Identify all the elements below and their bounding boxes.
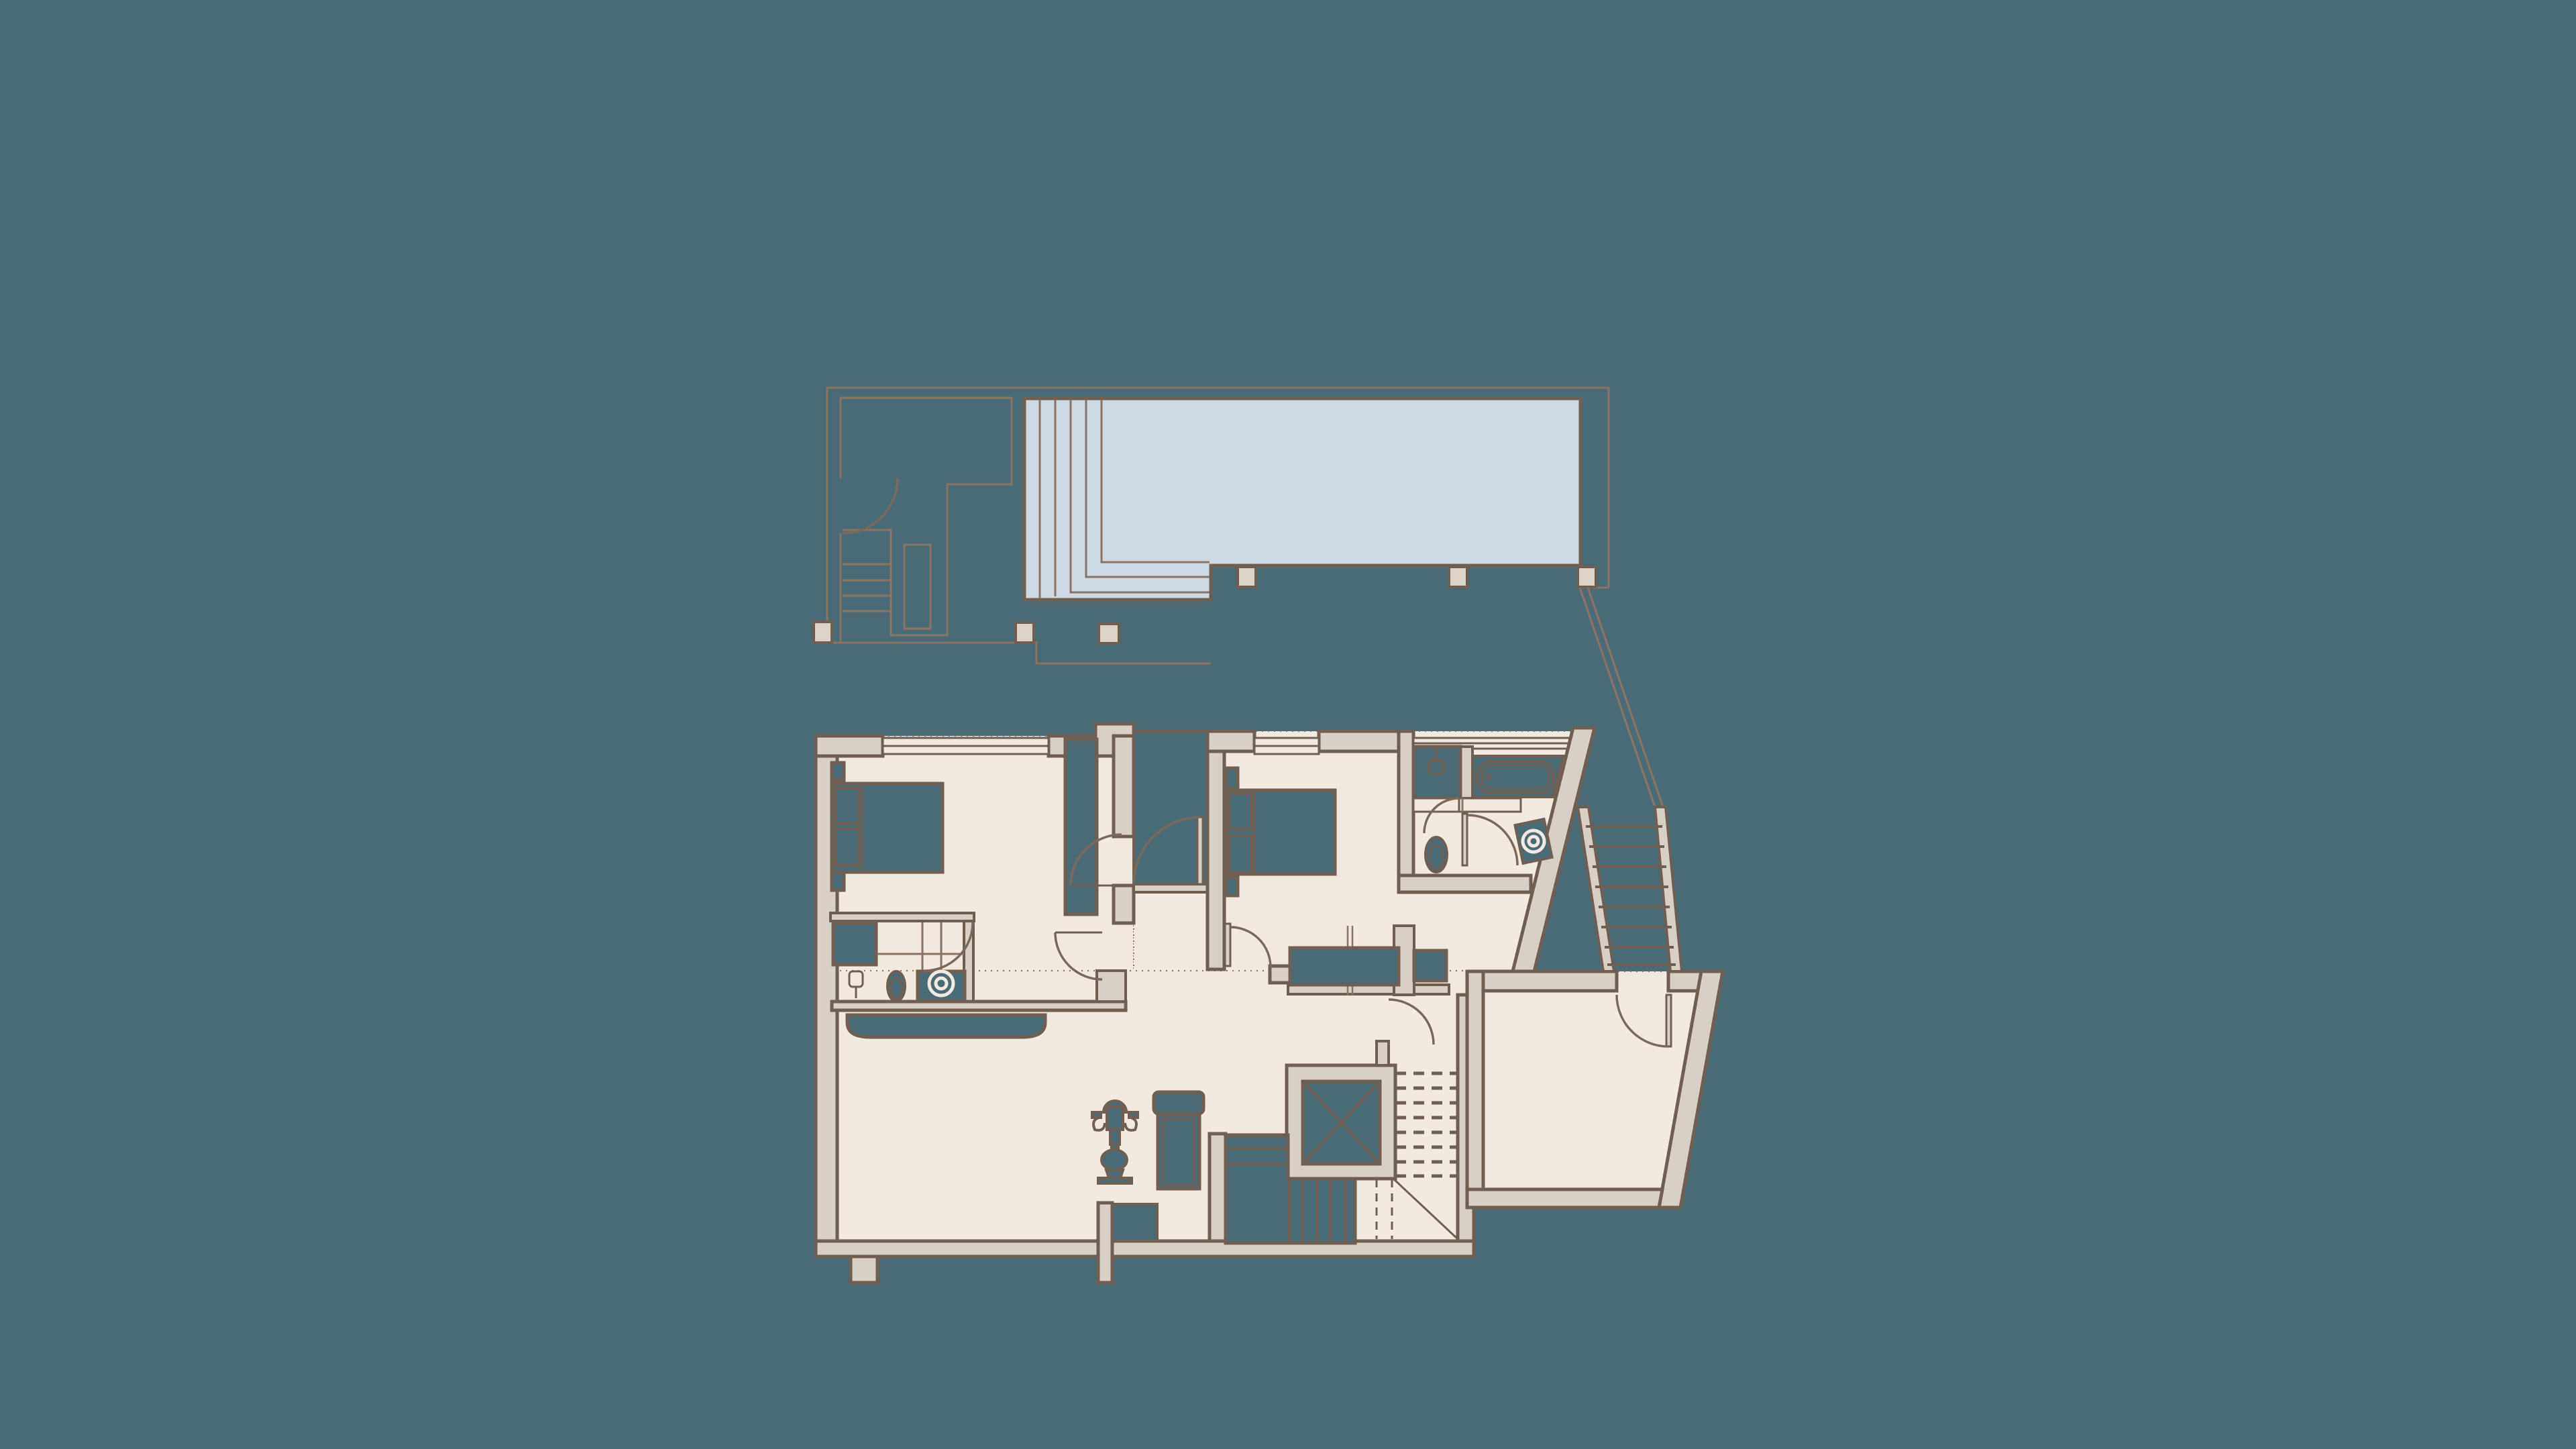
bedroom-2-door-leaf — [1225, 924, 1230, 966]
front-door-leaf — [1197, 817, 1203, 884]
pilaster — [1098, 1203, 1112, 1283]
pillow-icon — [835, 828, 859, 865]
floor-plan-canvas — [0, 0, 2576, 1449]
workout-bench-icon — [1154, 1092, 1203, 1189]
floor-plan-drawing — [0, 0, 2576, 1449]
wardrobe-icon — [1065, 739, 1097, 914]
pillow-icon — [1229, 836, 1252, 872]
wall — [1114, 736, 1134, 837]
wall — [1668, 971, 1701, 991]
pillow-icon — [1229, 794, 1252, 829]
wall — [1467, 1189, 1662, 1207]
tilted-washbasin-unit — [1515, 819, 1552, 863]
pilaster — [851, 1256, 877, 1283]
closet-icon — [1290, 948, 1399, 985]
wall — [1460, 747, 1472, 798]
shower-head-icon — [1429, 760, 1444, 773]
pedestal-fixture-icon — [849, 971, 863, 987]
closet-icon — [1414, 951, 1446, 981]
column — [1016, 623, 1034, 643]
shower-icon — [833, 923, 876, 965]
wall — [1399, 731, 1413, 892]
wall — [1097, 971, 1126, 1002]
bathroom-2-door-leaf — [1462, 814, 1467, 865]
entry-door-leaf — [1666, 995, 1671, 1046]
column — [1238, 567, 1256, 587]
pillow-icon — [835, 788, 859, 823]
lightwell-notch — [1112, 1204, 1157, 1241]
nightstand-icon — [832, 763, 844, 780]
nightstand-icon — [1226, 877, 1238, 896]
wall — [1114, 885, 1134, 923]
wall — [830, 913, 974, 921]
wall — [1134, 884, 1207, 892]
wall — [1467, 971, 1483, 1207]
wall — [816, 736, 883, 756]
column — [1449, 567, 1467, 587]
wall — [1399, 875, 1531, 892]
column — [1578, 567, 1596, 587]
vanity-counter — [1413, 798, 1521, 812]
column — [814, 622, 832, 643]
wall — [1207, 731, 1254, 751]
wall — [816, 1241, 1474, 1256]
washbasin-cabinet — [1515, 819, 1552, 863]
wall — [832, 1002, 1126, 1010]
wall — [1207, 731, 1224, 969]
column — [1099, 624, 1119, 643]
wall — [1319, 731, 1399, 751]
wall — [1210, 1134, 1226, 1243]
curved-bench — [847, 1015, 1045, 1037]
nightstand-icon — [1226, 768, 1238, 788]
wall — [1467, 971, 1617, 991]
wall — [1377, 1041, 1389, 1065]
